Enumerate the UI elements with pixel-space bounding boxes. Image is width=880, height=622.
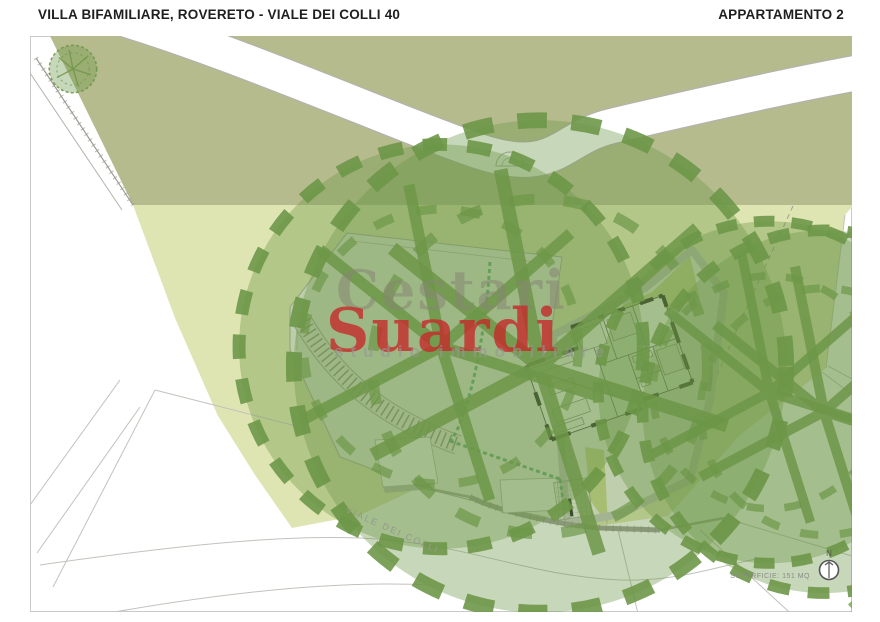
page-title: VILLA BIFAMILIARE, ROVERETO - VIALE DEI …	[38, 7, 400, 22]
apartment-label: APPARTAMENTO 2	[718, 7, 844, 22]
tree-icon	[239, 144, 643, 548]
tree-icon	[49, 45, 97, 93]
site-plan-drawing: VIALE DEI COLLI SUPERFICIE: 151 MQ N	[0, 0, 880, 622]
area-label: SUPERFICIE: 151 MQ	[730, 573, 810, 580]
compass-north-label: N	[826, 549, 832, 558]
